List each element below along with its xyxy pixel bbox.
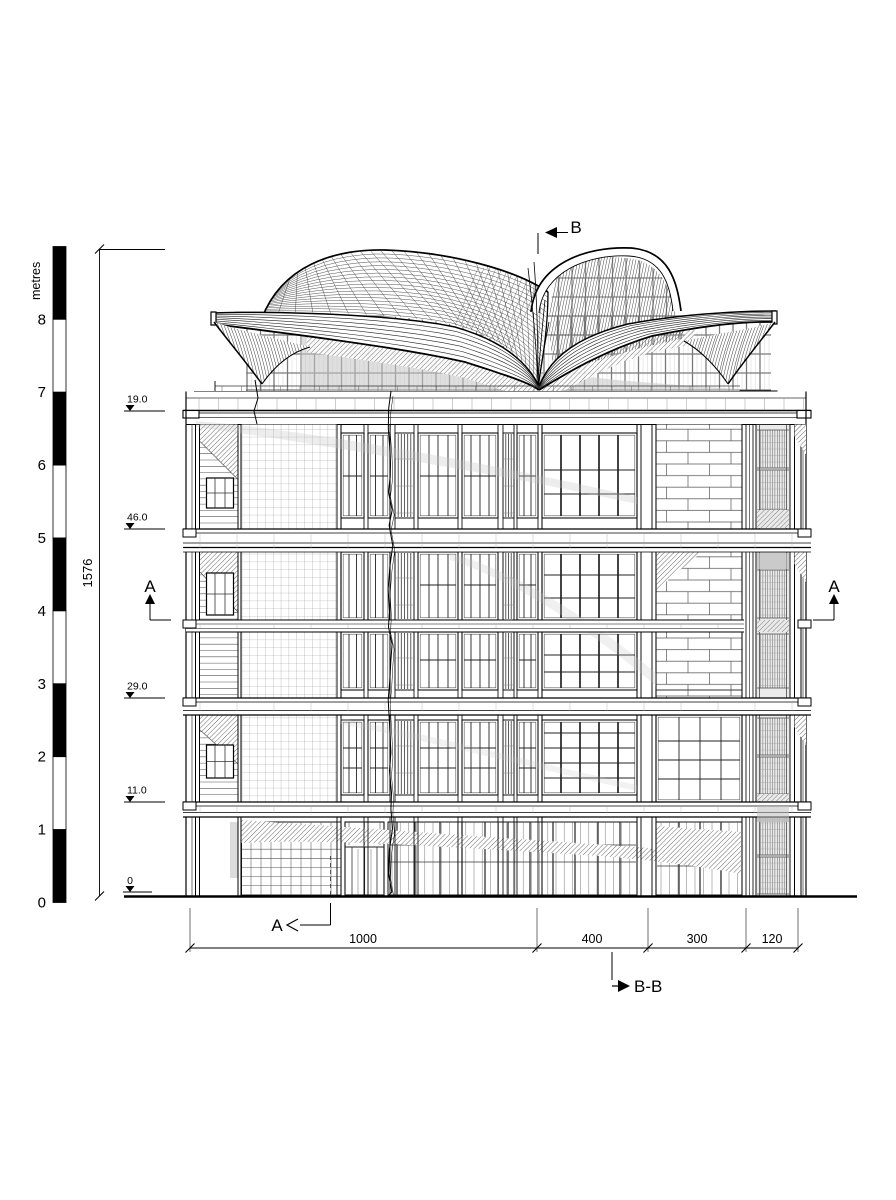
svg-text:1000: 1000 xyxy=(349,932,377,946)
svg-text:B: B xyxy=(570,218,581,237)
svg-text:46.0: 46.0 xyxy=(127,512,148,524)
svg-text:A: A xyxy=(271,916,283,935)
svg-text:5: 5 xyxy=(38,530,46,547)
svg-text:metres: metres xyxy=(29,262,43,300)
svg-text:11.0: 11.0 xyxy=(127,785,147,797)
svg-text:1576: 1576 xyxy=(80,559,95,588)
svg-text:6: 6 xyxy=(38,457,46,474)
svg-text:2: 2 xyxy=(38,749,46,766)
svg-text:300: 300 xyxy=(687,932,708,946)
svg-text:1: 1 xyxy=(38,822,46,839)
svg-text:4: 4 xyxy=(38,603,46,620)
svg-text:A: A xyxy=(828,577,840,596)
svg-text:0: 0 xyxy=(127,875,133,887)
svg-text:29.0: 29.0 xyxy=(127,681,148,693)
svg-text:A: A xyxy=(144,577,156,596)
svg-text:0: 0 xyxy=(38,895,46,912)
svg-text:8: 8 xyxy=(38,311,46,328)
svg-text:3: 3 xyxy=(38,676,46,693)
svg-text:400: 400 xyxy=(582,932,603,946)
svg-text:19.0: 19.0 xyxy=(127,394,148,406)
svg-text:7: 7 xyxy=(38,384,46,401)
svg-text:B-B: B-B xyxy=(634,977,662,996)
svg-text:120: 120 xyxy=(762,932,783,946)
